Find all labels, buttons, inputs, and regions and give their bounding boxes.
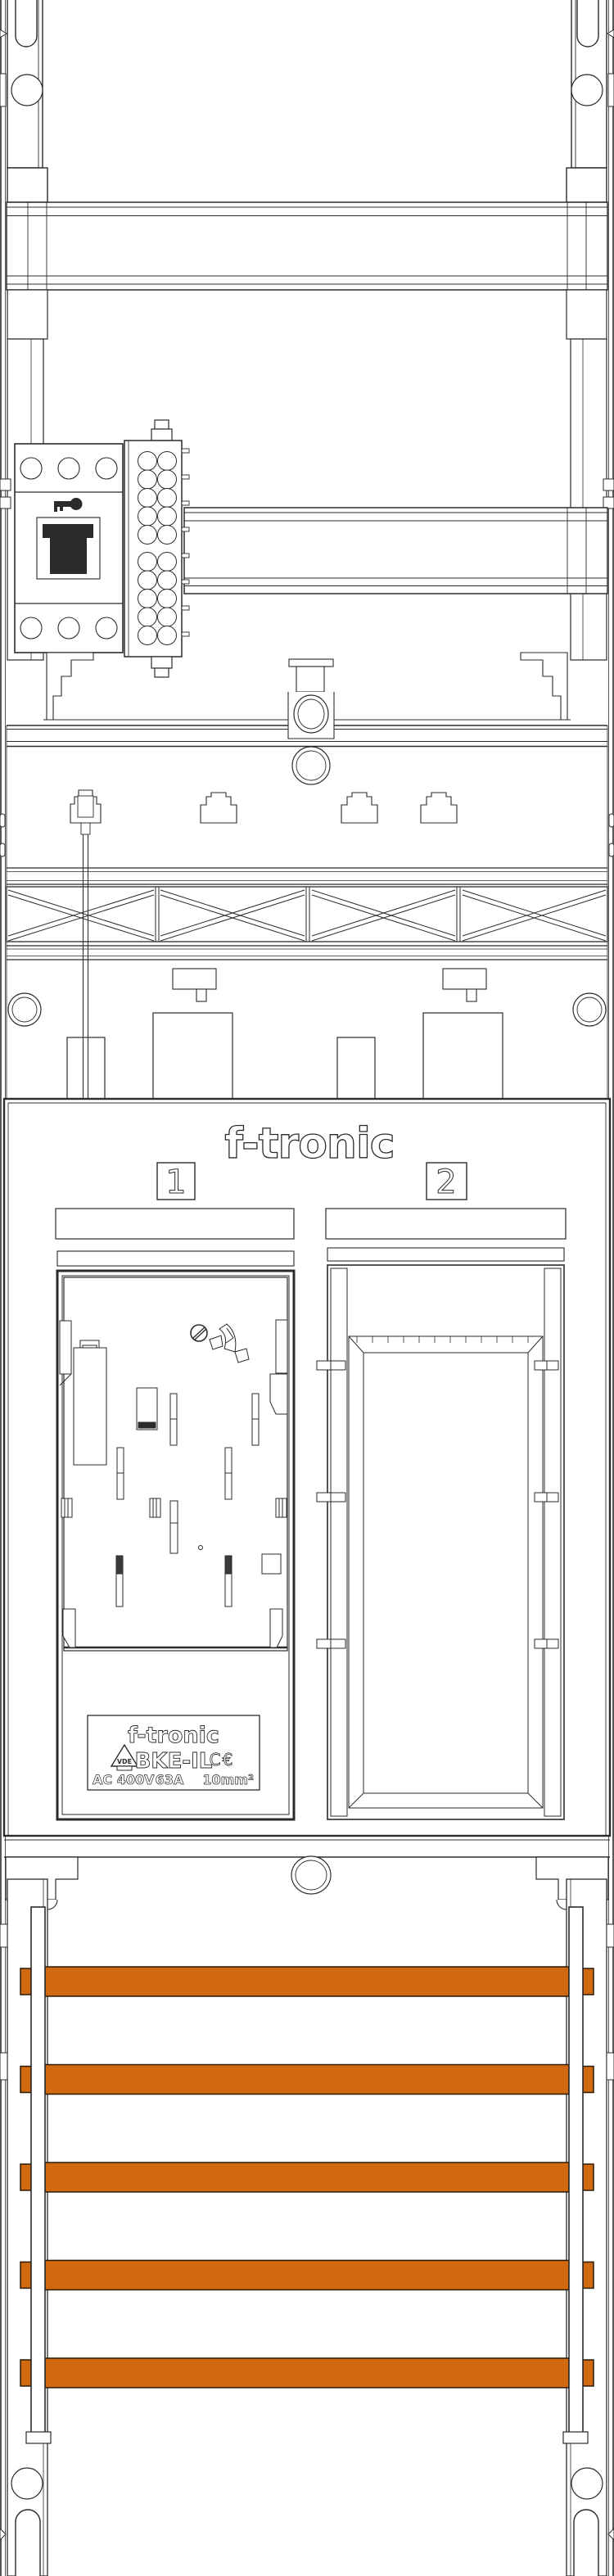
rj45-plug-icon [70, 790, 101, 834]
edge-bracket [603, 497, 614, 508]
left-step-bracket [47, 653, 93, 720]
bottom-right-hole [571, 2468, 603, 2499]
bottom-center-oval [291, 1856, 331, 1894]
nameplate-model: BKE-IL [135, 1749, 213, 1774]
edge-bracket [607, 2053, 614, 2080]
edge-nub [609, 843, 614, 856]
edge-bracket [0, 497, 11, 508]
edge-bracket [0, 74, 6, 106]
edge-nub [0, 843, 5, 856]
field-tag-2: 2 [427, 1163, 467, 1201]
edge-bracket [0, 1924, 7, 1947]
left-holder-bar [31, 1907, 45, 2438]
field-tag-1: 1 [157, 1163, 195, 1201]
top-left-slot [16, 0, 37, 47]
oval-knockout-lower [292, 747, 330, 784]
edge-hole-left [8, 993, 41, 1026]
top-right-rail [567, 0, 614, 202]
center-support [289, 659, 333, 692]
label-strip-left [56, 1209, 294, 1239]
top-left-hole [11, 75, 43, 106]
field2-right-rail [544, 1268, 561, 1816]
edge-tab [0, 2529, 6, 2540]
lattice-truss [7, 887, 607, 960]
field2-bevel-frame [349, 1336, 543, 1808]
bottom-right-slot [574, 2510, 598, 2576]
edge-nub [609, 814, 614, 827]
edge-nub [0, 814, 5, 827]
panel-bottom-flange [4, 1840, 610, 1909]
top-right-hole [571, 75, 603, 106]
keystone-jack-icon [421, 793, 457, 823]
panel-brand-logo: f-tronic [224, 1119, 394, 1168]
meter-field: f-tronic VDE BKE-IL C€ AC 400V 63A 10mm² [57, 1251, 294, 1819]
edge-bracket [0, 479, 11, 490]
right-holder-foot [563, 2432, 588, 2443]
riser-block [67, 1037, 105, 1099]
bottom-left-slot [16, 2510, 40, 2576]
top-left-rail [0, 0, 47, 202]
device-field [317, 1248, 564, 1819]
keystone-jack-icon [201, 793, 237, 823]
edge-tab [608, 2529, 614, 2540]
mounting-flag [173, 969, 216, 1001]
terminal-block [124, 420, 189, 677]
rating-current: 63A [156, 1772, 184, 1787]
label-strip-right [326, 1209, 566, 1239]
key-lock-module [15, 444, 123, 653]
edge-bracket [603, 479, 614, 490]
nameplate: f-tronic VDE BKE-IL C€ AC 400V 63A 10mm² [88, 1715, 260, 1790]
rating-cross-section: 10mm² [202, 1772, 254, 1787]
horizontal-din-rail-top [7, 202, 607, 290]
svg-text:VDE: VDE [117, 1758, 132, 1765]
svg-text:1: 1 [165, 1164, 186, 1201]
busbar-row [20, 1967, 594, 1996]
bottom-left-hole [11, 2468, 43, 2499]
nameplate-brand: f-tronic [128, 1723, 219, 1748]
top-right-slot [577, 0, 598, 47]
left-holder-foot [26, 2432, 51, 2443]
edge-hole-right [573, 993, 606, 1026]
svg-text:2: 2 [436, 1164, 456, 1201]
riser-block [153, 1013, 233, 1099]
hood-section [0, 790, 614, 884]
horizontal-din-rail-middle [184, 508, 607, 594]
busbar-row [20, 2261, 594, 2290]
busbar-row [20, 2162, 594, 2192]
meter-cabinet-technical-drawing: f-tronic 1 2 [0, 0, 614, 2576]
busbar-assembly [20, 1967, 594, 2388]
busbar-row [20, 2358, 594, 2388]
keystone-jack-icon [341, 793, 377, 823]
right-holder-bar [569, 1907, 583, 2438]
mounting-flag [443, 969, 486, 1001]
t-bar [289, 659, 333, 667]
screw-head-icon [191, 1325, 207, 1341]
riser-block [423, 1013, 503, 1099]
edge-bracket [607, 1924, 614, 1947]
ce-mark: C€ [210, 1750, 235, 1769]
center-oval-housing [288, 692, 334, 784]
rating-voltage: AC 400V [93, 1772, 155, 1787]
upper-frame-right-rail-lower [567, 290, 614, 660]
busbar-row [20, 2065, 594, 2095]
oval-knockout-upper [294, 695, 328, 733]
t-stem [296, 667, 324, 692]
riser-block [337, 1037, 375, 1099]
edge-bracket [0, 2053, 7, 2080]
edge-bracket [608, 74, 614, 106]
right-step-bracket [521, 653, 567, 720]
panel-top-band [8, 969, 606, 1099]
field2-left-rail [331, 1268, 347, 1816]
rj45-socket-icon [43, 524, 93, 574]
